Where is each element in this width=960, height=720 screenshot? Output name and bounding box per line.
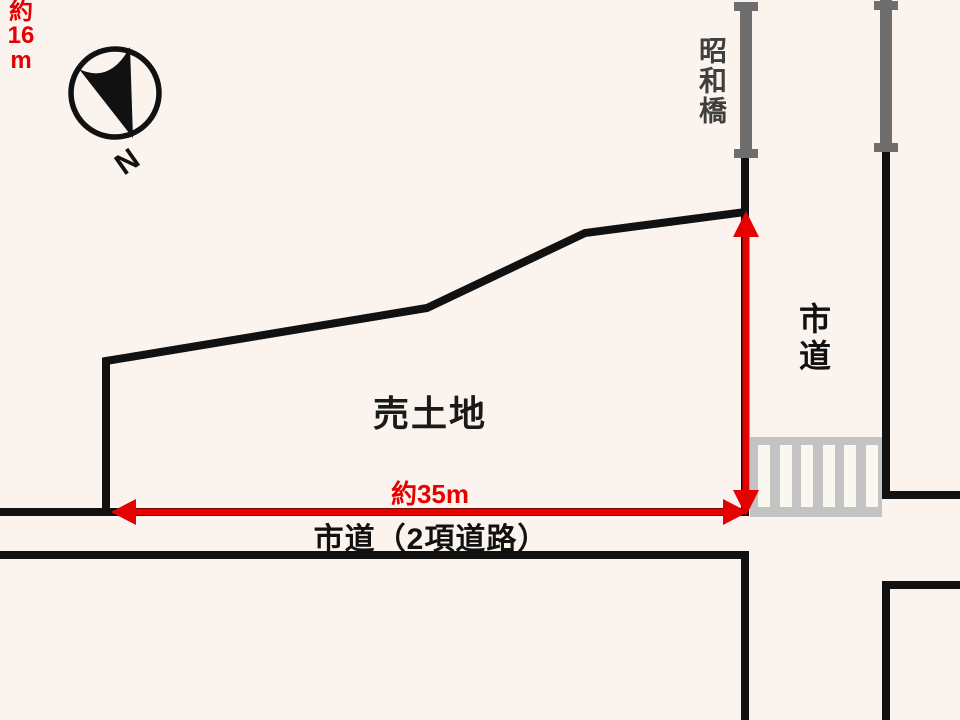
left-railing-bar xyxy=(740,2,752,155)
left-railing-top-cap xyxy=(734,2,758,11)
site-plan-canvas: N 昭和橋 市道 売土地 約35m 市道（2項道路） 約 16 m xyxy=(0,0,960,720)
bottom-road-lower-edge xyxy=(0,555,745,720)
plot-for-sale-label: 売土地 xyxy=(330,385,530,437)
crosswalk-stripe xyxy=(801,445,813,507)
compass-north-letter: N xyxy=(109,142,146,181)
bridge-railings xyxy=(734,0,898,158)
right-railing-top-cap xyxy=(874,1,898,10)
right-road-label: 市道 xyxy=(797,302,829,376)
crosswalk-stripe xyxy=(844,445,856,507)
crosswalk-stripe xyxy=(866,445,878,507)
right-railing-bottom-cap xyxy=(874,143,898,152)
right-road-right-edge-lower xyxy=(886,585,960,720)
right-road-right-edge-upper xyxy=(886,150,960,495)
crosswalk-stripe xyxy=(780,445,792,507)
bridge-name-label: 昭和橋 xyxy=(697,36,725,126)
right-railing-bar xyxy=(880,0,892,150)
width-dimension-label: 約35m xyxy=(330,474,530,511)
crosswalk-stripe xyxy=(823,445,835,507)
compass: N xyxy=(71,47,159,182)
width-arrowhead-left xyxy=(111,499,136,525)
bottom-road-label: 市道（2項道路） xyxy=(231,514,631,558)
crosswalk-stripe xyxy=(758,445,770,507)
plot-outline xyxy=(106,212,745,512)
left-railing-bottom-cap xyxy=(734,149,758,158)
crosswalk xyxy=(750,437,882,517)
